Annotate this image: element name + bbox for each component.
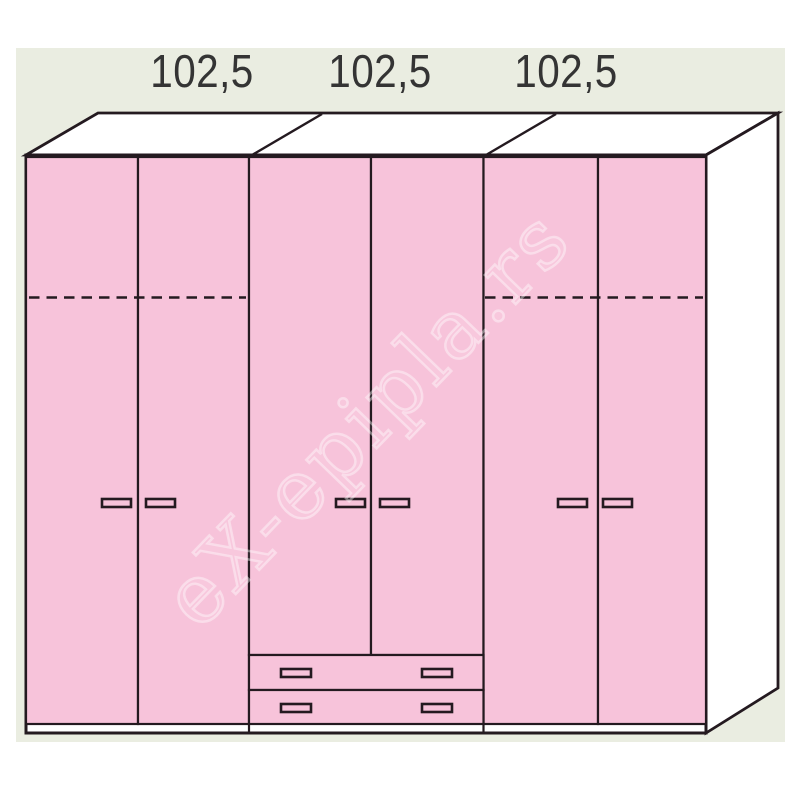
drawer-handle-1a (281, 669, 311, 677)
door-6 (598, 157, 706, 724)
wardrobe-drawing (16, 48, 800, 800)
door-handle-5 (558, 499, 587, 507)
door-handle-2 (146, 499, 175, 507)
drawer-handle-1b (422, 669, 452, 677)
door-1 (26, 157, 138, 724)
wardrobe-top-face (26, 113, 778, 155)
wardrobe-side-panel (706, 113, 778, 733)
door-4 (371, 157, 484, 655)
door-2 (138, 157, 249, 724)
diagram-stage: 102,5 102,5 102,5 (0, 0, 800, 800)
drawer-handle-2b (422, 704, 452, 712)
door-3 (249, 157, 371, 655)
door-handle-3 (336, 499, 365, 507)
drawing-canvas: 102,5 102,5 102,5 (16, 48, 785, 742)
drawer-handle-2a (281, 704, 311, 712)
door-handle-6 (603, 499, 632, 507)
door-handle-4 (380, 499, 409, 507)
door-5 (484, 157, 599, 724)
door-handle-1 (102, 499, 131, 507)
